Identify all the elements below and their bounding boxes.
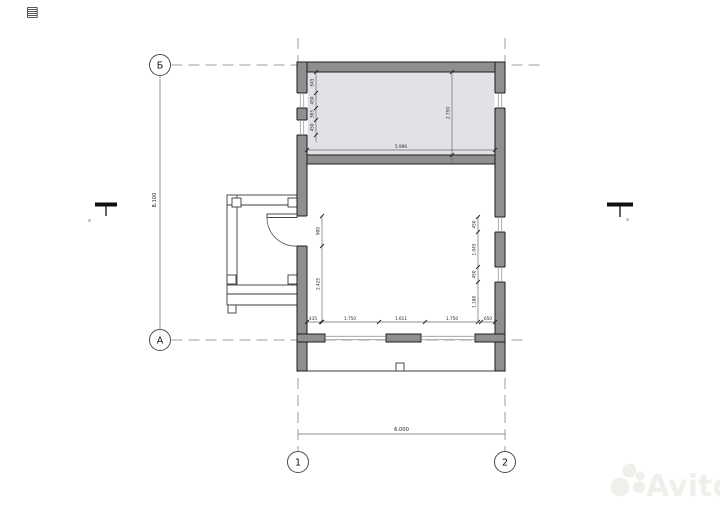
chain-label: 450 xyxy=(310,123,315,131)
porch-post xyxy=(232,198,241,207)
chain-label: 650 xyxy=(484,316,492,321)
porch-step-post xyxy=(228,305,236,313)
chain-label: 365 xyxy=(310,110,315,118)
avito-logo-icon xyxy=(611,478,630,497)
chain-label: 1.750 xyxy=(344,316,356,321)
window-opening xyxy=(494,267,505,282)
section-marker-right-bar xyxy=(607,203,633,207)
window-left-1 xyxy=(296,93,307,108)
floor-plan-drawing: 8.100 6.000 xyxy=(0,0,720,509)
grid-bubble-1-label: 1 xyxy=(295,458,301,469)
porch-post xyxy=(288,198,297,207)
door-leaf xyxy=(267,214,297,218)
section-marker-left-bar xyxy=(95,203,117,207)
terrace-post xyxy=(396,363,404,371)
door-width-label: 900 xyxy=(316,227,321,235)
porch-deck xyxy=(227,195,297,285)
grid-bubble-B-label: Б xyxy=(157,61,164,72)
window-right-3 xyxy=(494,267,505,282)
porch-post xyxy=(227,275,236,284)
window-opening xyxy=(494,93,505,108)
window-opening xyxy=(494,217,505,232)
corner-mark-icon: ▤ xyxy=(26,4,39,20)
chain-label: 450 xyxy=(472,270,477,278)
wall-bottom-right-stub xyxy=(475,334,505,342)
chain-label: 450 xyxy=(310,96,315,104)
window-opening xyxy=(296,120,307,135)
chain-label: 435 xyxy=(309,316,317,321)
chain-label: 1.045 xyxy=(472,243,477,255)
horizontal-span-dim-label: 6.000 xyxy=(394,427,409,433)
wall-partition xyxy=(307,155,495,164)
floor-plan-page: 8.100 6.000 xyxy=(0,0,720,509)
grid-bubble-2-label: 2 xyxy=(502,458,508,469)
chain-label: 450 xyxy=(472,220,477,228)
watermark-text: Avito xyxy=(646,469,720,504)
chain-label: 1.188 xyxy=(472,296,477,308)
avito-logo-icon xyxy=(633,481,645,493)
vertical-span-dim-label: 8.100 xyxy=(152,193,158,208)
chain-label: 1.750 xyxy=(446,316,458,321)
porch-post xyxy=(288,275,297,284)
door-offset-label: 2.425 xyxy=(316,278,321,290)
terrace xyxy=(297,342,505,371)
door-opening xyxy=(296,216,307,246)
attic-height-dim-label: 2.750 xyxy=(446,107,451,119)
window-right-1 xyxy=(494,93,505,108)
shaded-room-fill xyxy=(307,72,495,155)
wall-bottom-pier xyxy=(386,334,421,342)
window-opening xyxy=(296,93,307,108)
chain-label: 1.611 xyxy=(395,316,407,321)
window-left-2 xyxy=(296,120,307,135)
grid-bubble-A-label: А xyxy=(157,336,164,347)
window-right-2 xyxy=(494,217,505,232)
avito-logo-icon xyxy=(636,472,645,481)
wall-top xyxy=(297,62,505,72)
attic-width-dim-label: 5.996 xyxy=(395,144,407,149)
section-marker-right-dot xyxy=(626,218,629,221)
wall-bottom-left-stub xyxy=(297,334,325,342)
avito-logo-icon xyxy=(623,464,637,478)
chain-label: 645 xyxy=(310,78,315,86)
section-marker-left-dot xyxy=(88,219,91,222)
